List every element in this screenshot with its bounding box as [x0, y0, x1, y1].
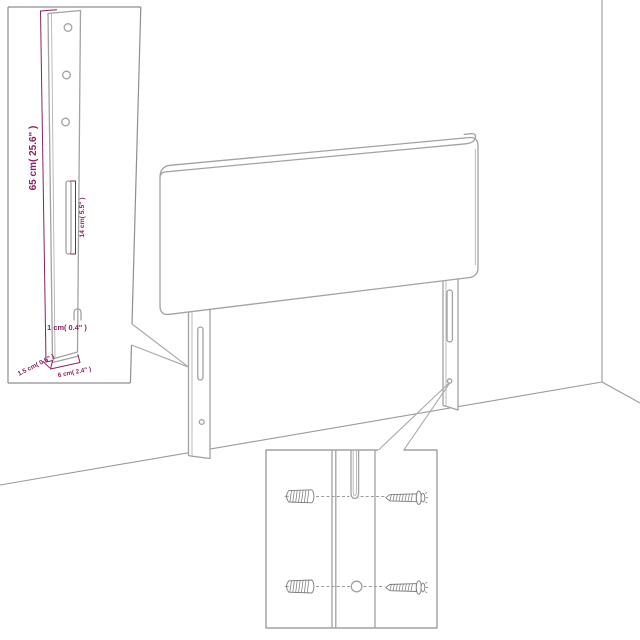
slot-length-label: 14 cm( 5.5" ) — [79, 197, 86, 237]
leg-slot — [447, 290, 452, 342]
leg-slot-detail — [66, 181, 71, 254]
leg-slot — [198, 327, 203, 380]
headboard-leg-left — [189, 300, 211, 459]
wall-plug-icon — [285, 490, 314, 503]
headboard-panel — [160, 134, 478, 315]
leg-height-label: 65 cm( 25.6" ) — [28, 126, 39, 191]
magnifier-callout-lines — [132, 324, 450, 451]
hook-slot-label: 1 cm( 0.4" ) — [47, 323, 87, 332]
leg-dimension-inset: 65 cm( 25.6" ) 14 cm( 5.5" ) 1 cm( 0.4" … — [8, 7, 141, 383]
floor-line-right — [602, 382, 640, 403]
hardware-inset — [266, 450, 437, 628]
headboard-diagram: 65 cm( 25.6" ) 14 cm( 5.5" ) 1 cm( 0.4" … — [0, 0, 640, 640]
product-diagram-image: 65 cm( 25.6" ) 14 cm( 5.5" ) 1 cm( 0.4" … — [0, 0, 640, 640]
wall-plug-icon — [285, 580, 314, 593]
